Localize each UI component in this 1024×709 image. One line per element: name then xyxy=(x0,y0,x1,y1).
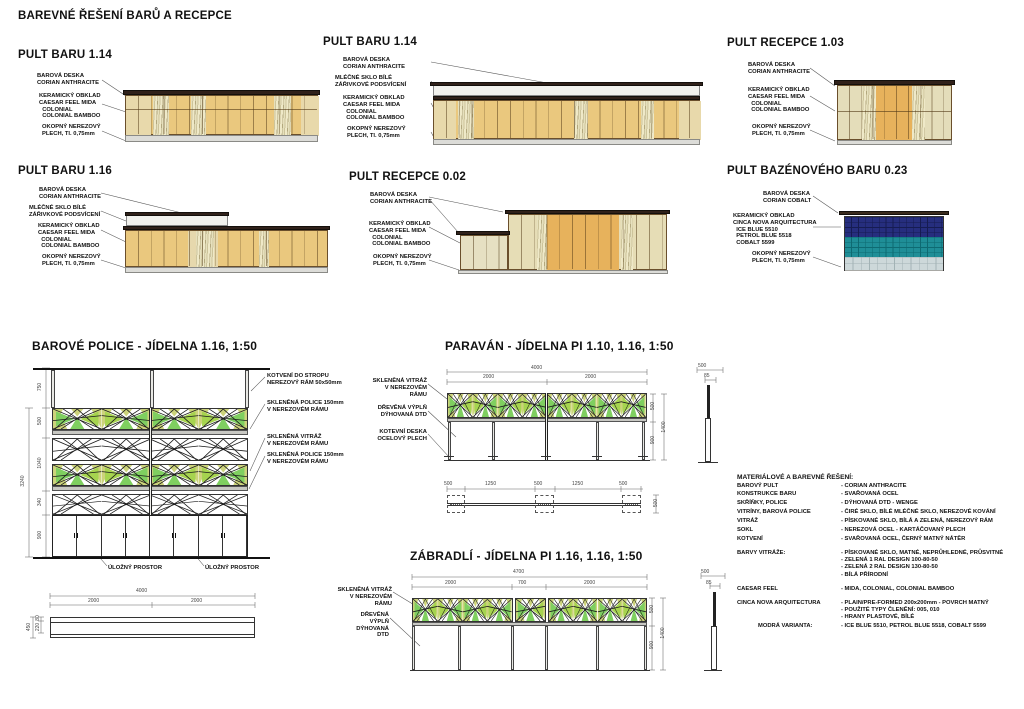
dim: 900 xyxy=(649,634,655,656)
police-label: SKLENĚNÁ POLICE 150mm V NEREZOVÉM RÁMU xyxy=(267,400,344,414)
plinth xyxy=(837,140,952,145)
elevation-3-label: BAROVÁ DESKA CORIAN ANTHRACITE xyxy=(748,62,810,76)
material-value: - NEREZOVÁ OCEL - KARTÁČOVANÝ PLECH xyxy=(841,527,1021,534)
dim: 500 xyxy=(698,363,706,369)
dim: 2000 xyxy=(191,598,202,604)
vitraz-tile xyxy=(448,394,473,417)
material-key: KONSTRUKCE BARU xyxy=(737,491,841,498)
vitraz-band xyxy=(412,598,513,622)
materials-row: CAESAR FEEL- MIDA, COLONIAL, COLONIAL BA… xyxy=(737,586,1021,593)
zabradli-label: DŘEVĚNÁ VÝPLŇ DÝHOVANÁ DTD xyxy=(343,612,389,639)
materials-row: MODRÁ VARIANTA:- ICE BLUE 5510, PETROL B… xyxy=(737,623,1021,630)
counter-elevation-pult-recepce-103 xyxy=(834,80,955,145)
vitraz-tile xyxy=(549,599,573,621)
vitraz-tile xyxy=(547,394,572,417)
dim: 1250 xyxy=(485,481,496,487)
dim: 1250 xyxy=(572,481,583,487)
support-post xyxy=(596,626,599,670)
dim: 500 xyxy=(534,481,542,487)
vitraz-tile xyxy=(413,599,438,621)
support-post xyxy=(644,626,647,670)
vitraz-tile xyxy=(522,394,547,417)
elevation-3-label: KERAMICKÝ OBKLAD CAESAR FEEL MIDA COLONI… xyxy=(748,87,810,114)
paravan-label: KOTEVNÍ DESKA OCELOVÝ PLECH xyxy=(377,429,427,443)
material-key: SKŘÍŇKY, POLICE xyxy=(737,500,841,507)
material-value: - ICE BLUE 5510, PETROL BLUE 5518, COBAL… xyxy=(841,623,1021,630)
support-post xyxy=(596,422,599,460)
plan-line xyxy=(51,622,254,623)
materials-row: KOTVENÍ- SVAŘOVANÁ OCEL, ČERNÝ MATNÝ NÁT… xyxy=(737,536,1021,543)
counter-top-slab xyxy=(839,211,949,215)
elevation-5-title: PULT RECEPCE 0.02 xyxy=(349,171,466,183)
elevation-4-label: BAROVÁ DESKA CORIAN ANTHRACITE xyxy=(39,187,101,201)
counter-elevation-pult-baru-114 xyxy=(123,90,320,142)
elevation-2-label: OKOPNÝ NEREZOVÝ PLECH, Tl. 0,75mm xyxy=(347,126,406,140)
elevation-2-label: BAROVÁ DESKA CORIAN ANTHRACITE xyxy=(343,57,405,71)
support-post xyxy=(448,422,451,460)
plinth xyxy=(125,135,318,142)
elevation-6-label: OKOPNÝ NEREZOVÝ PLECH, Tl. 0,75mm xyxy=(752,251,811,265)
dim: 500 xyxy=(650,395,656,417)
vitraz-tile xyxy=(102,495,151,514)
cabinet-door xyxy=(77,516,101,556)
milk-glass-band xyxy=(126,216,228,226)
material-value: - ČIRÉ SKLO, BÍLÉ MLÉČNÉ SKLO, NEREZOVÉ … xyxy=(841,509,1021,516)
dim: 500 xyxy=(37,410,43,432)
elevation-1-title: PULT BARU 1.14 xyxy=(18,49,112,61)
base-plate xyxy=(541,456,551,457)
vitraz-tile xyxy=(597,394,622,417)
dim: 1400 xyxy=(661,416,667,438)
plinth xyxy=(433,139,700,146)
footing-axis xyxy=(625,504,638,505)
vitraz-tile xyxy=(53,409,102,429)
pool-band-petrol xyxy=(845,237,943,257)
materials-legend: MATERIÁLOVÉ A BAREVNÉ ŘEŠENÍ: BAROVÝ PUL… xyxy=(737,474,1021,631)
cabinet-door xyxy=(223,516,247,556)
sheet-title: BAREVNÉ ŘEŠENÍ BARŮ A RECEPCE xyxy=(18,10,232,22)
elevation-4-title: PULT BARU 1.16 xyxy=(18,165,112,177)
dim: 2000 xyxy=(584,580,595,586)
dim: 900 xyxy=(37,524,43,546)
zabradli-title: ZÁBRADLÍ - JÍDELNA PI 1.16, 1.16, 1:50 xyxy=(410,549,643,563)
ceiling-anchor-post xyxy=(150,370,154,408)
vitraz-tile xyxy=(622,599,646,621)
dim: 500 xyxy=(444,481,452,487)
footing-plate xyxy=(447,495,465,513)
dim: 340 xyxy=(37,491,43,513)
elevation-3-title: PULT RECEPCE 1.03 xyxy=(727,37,844,49)
materials-row: SOKL- NEREZOVÁ OCEL - KARTÁČOVANÝ PLECH xyxy=(737,527,1021,534)
side-profile-base xyxy=(704,670,722,671)
cabinet-door xyxy=(199,516,223,556)
elevation-5-label: KERAMICKÝ OBKLAD CAESAR FEEL MIDA COLONI… xyxy=(369,221,431,248)
vitraz-band xyxy=(515,598,546,622)
materials-row: BAROVÝ PULT- CORIAN ANTHRACITE xyxy=(737,483,1021,490)
storage-label: ÚLOŽNÝ PROSTOR xyxy=(108,565,162,572)
dim: 500 xyxy=(653,492,659,514)
police-label: KOTVENÍ DO STROPU NEREZOVÝ RÁM 50x50mm xyxy=(267,373,342,387)
base-plate xyxy=(444,456,454,457)
vitraz-tile xyxy=(199,465,248,485)
footing-axis xyxy=(450,504,462,505)
vitraz-tile xyxy=(150,439,199,460)
vitraz-tile xyxy=(516,599,545,621)
vitraz-tile xyxy=(573,599,597,621)
dim: 85 xyxy=(704,373,710,379)
tile-joint-horizontal xyxy=(838,111,951,112)
drawing-sheet: BAREVNÉ ŘEŠENÍ BARŮ A RECEPCE PULT BARU … xyxy=(0,0,1024,709)
zabradli-label: SKLENĚNÁ VITRÁŽ V NEREZOVÉM RÁMU xyxy=(334,587,392,607)
door-handle xyxy=(221,533,225,538)
dim: 900 xyxy=(650,429,656,451)
tile-joints xyxy=(509,215,666,269)
tile-joints xyxy=(838,86,951,139)
footing-plate xyxy=(535,495,554,513)
vitraz-tile xyxy=(53,495,102,514)
material-key: VITRÍNY, BAROVÁ POLICE xyxy=(737,509,841,516)
tile-joint-horizontal xyxy=(126,109,317,110)
vitraz-tile xyxy=(438,599,463,621)
paravan-title: PARAVÁN - JÍDELNA PI 1.10, 1.16, 1:50 xyxy=(445,339,674,353)
elevation-4-label: MLÉČNÉ SKLO BÍLÉ ZÁŘIVKOVÉ PODSVÍCENÍ xyxy=(29,205,100,219)
counter-elevation-pult-baru-116 xyxy=(123,212,330,273)
dim: 500 xyxy=(649,598,655,620)
elevation-2-label: KERAMICKÝ OBKLAD CAESAR FEEL MIDA COLONI… xyxy=(343,95,405,122)
door-handle xyxy=(74,533,78,538)
ceramic-tiles xyxy=(433,100,700,139)
side-profile-base xyxy=(698,462,718,463)
support-post xyxy=(458,626,461,670)
ceramic-tiles xyxy=(508,214,667,270)
cabinet-door xyxy=(174,516,198,556)
storage-label: ÚLOŽNÝ PROSTOR xyxy=(205,565,259,572)
dim: 4000 xyxy=(136,588,147,594)
vitraz-tile xyxy=(53,465,102,485)
side-profile-glass xyxy=(713,592,716,626)
footing-axis xyxy=(538,504,551,505)
support-post xyxy=(642,422,645,460)
pool-base-strip xyxy=(845,270,943,272)
materials-title: MATERIÁLOVÉ A BAREVNÉ ŘEŠENÍ: xyxy=(737,474,1021,481)
police-title: BAROVÉ POLICE - JÍDELNA 1.16, 1:50 xyxy=(32,339,257,353)
vitraz-tile xyxy=(572,394,597,417)
vitraz-tile xyxy=(463,599,488,621)
material-key: MODRÁ VARIANTA: xyxy=(737,623,841,630)
frame-divider xyxy=(545,393,548,460)
dim: 450 xyxy=(26,620,32,634)
vitraz-tile xyxy=(102,465,151,485)
police-plan-outline xyxy=(50,617,255,638)
vitraz-tile xyxy=(498,394,523,417)
material-key: BAROVÝ PULT xyxy=(737,483,841,490)
police-label: SKLENĚNÁ VITRÁŽ V NEREZOVÉM RÁMU xyxy=(267,434,328,448)
dim: 750 xyxy=(37,376,43,398)
material-value: - PÍSKOVANÉ SKLO, MATNÉ, NEPRŮHLEDNÉ, PR… xyxy=(841,550,1021,579)
material-key: CINCA NOVA ARQUITECTURA xyxy=(737,600,841,622)
materials-row: KONSTRUKCE BARU- SVAŘOVANÁ OCEL xyxy=(737,491,1021,498)
side-profile-post xyxy=(705,418,711,462)
dim: 500 xyxy=(619,481,627,487)
base-plate xyxy=(592,456,602,457)
paravan-label: DŘEVĚNÁ VÝPLŇ DÝHOVANÁ DTD xyxy=(377,405,427,419)
elevation-4-label: OKOPNÝ NEREZOVÝ PLECH, Tl. 0,75mm xyxy=(42,254,101,268)
elevation-1-label: BAROVÁ DESKA CORIAN ANTHRACITE xyxy=(37,73,99,87)
material-value: - PLAIN/PRE-FORMED 200x200mm - POVRCH MA… xyxy=(841,600,1021,622)
police-label: SKLENĚNÁ POLICE 150mm V NEREZOVÉM RÁMU xyxy=(267,452,344,466)
material-value: - CORIAN ANTHRACITE xyxy=(841,483,1021,490)
plinth xyxy=(125,267,328,274)
vitraz-tile xyxy=(53,439,102,460)
materials-row: BARVY VITRÁŽE:- PÍSKOVANÉ SKLO, MATNÉ, N… xyxy=(737,550,1021,579)
vitraz-tile xyxy=(102,409,151,429)
ceiling-anchor-post xyxy=(51,370,55,408)
elevation-3-label: OKOPNÝ NEREZOVÝ PLECH, Tl. 0,75mm xyxy=(752,124,811,138)
material-key: SOKL xyxy=(737,527,841,534)
dim: 1040 xyxy=(37,452,43,474)
plan-line xyxy=(51,634,254,635)
floor-line xyxy=(410,670,650,671)
base-plate xyxy=(638,456,648,457)
material-key: BARVY VITRÁŽE: xyxy=(737,550,841,579)
dim: 2000 xyxy=(483,374,494,380)
support-post xyxy=(511,626,514,670)
ceramic-tiles xyxy=(460,235,508,271)
pool-tile-wall xyxy=(844,216,944,271)
elevation-1-label: KERAMICKÝ OBKLAD CAESAR FEEL MIDA COLONI… xyxy=(39,93,101,120)
side-profile-glass xyxy=(707,385,710,418)
dim: 700 xyxy=(518,580,526,586)
material-value: - SVAŘOVANÁ OCEL xyxy=(841,491,1021,498)
floor-line xyxy=(33,557,270,559)
vitraz-tile xyxy=(199,439,248,460)
vitraz-tile xyxy=(150,465,199,485)
tile-joints xyxy=(126,231,327,266)
frame-divider xyxy=(149,408,152,515)
tile-joints xyxy=(461,236,507,270)
elevation-5-label: OKOPNÝ NEREZOVÝ PLECH, Tl. 0,75mm xyxy=(373,254,432,268)
materials-row: VITRÍNY, BAROVÁ POLICE- ČIRÉ SKLO, BÍLÉ … xyxy=(737,509,1021,516)
dim: 1400 xyxy=(660,622,666,644)
material-key: CAESAR FEEL xyxy=(737,586,841,593)
counter-elevation-pult-recepce-002 xyxy=(456,210,670,274)
materials-row: SKŘÍŇKY, POLICE- DÝHOVANÁ DTD - WENGE xyxy=(737,500,1021,507)
tile-joints xyxy=(126,96,317,134)
vitraz-tile xyxy=(150,495,199,514)
elevation-4-label: KERAMICKÝ OBKLAD CAESAR FEEL MIDA COLONI… xyxy=(38,223,100,250)
dim: 2000 xyxy=(585,374,596,380)
counter-elevation-pult-baru-114b xyxy=(430,82,703,145)
elevation-2-label: MLÉČNÉ SKLO BÍLÉ ZÁŘIVKOVÉ PODSVÍCENÍ xyxy=(335,75,406,89)
ceramic-tiles xyxy=(125,95,318,135)
elevation-2-title: PULT BARU 1.14 xyxy=(323,36,417,48)
base-plate xyxy=(488,456,498,457)
floor-line xyxy=(444,460,650,461)
material-key: KOTVENÍ xyxy=(737,536,841,543)
elevation-5-label: BAROVÁ DESKA CORIAN ANTHRACITE xyxy=(370,192,432,206)
elevation-6-title: PULT BAZÉNOVÉHO BARU 0.23 xyxy=(727,165,908,177)
side-profile-post xyxy=(711,626,717,670)
vitraz-tile xyxy=(199,495,248,514)
elevation-6-label: BAROVÁ DESKA CORIAN COBALT xyxy=(763,191,811,205)
dim: 3240 xyxy=(20,470,26,492)
door-handle xyxy=(123,533,127,538)
vitraz-tile xyxy=(473,394,498,417)
dim: 4000 xyxy=(531,365,542,371)
vitraz-tile xyxy=(487,599,512,621)
material-value: - SVAŘOVANÁ OCEL, ČERNÝ MATNÝ NÁTĚR xyxy=(841,536,1021,543)
materials-row: CINCA NOVA ARQUITECTURA- PLAIN/PRE-FORME… xyxy=(737,600,1021,622)
vitraz-tile xyxy=(621,394,646,417)
cabinet-door xyxy=(150,516,174,556)
ceramic-tiles xyxy=(125,230,328,267)
cabinet-door xyxy=(126,516,150,556)
ceramic-tiles xyxy=(837,85,952,140)
pool-band-ice xyxy=(845,257,943,270)
door-handle xyxy=(172,533,176,538)
material-value: - PÍSKOVANÉ SKLO, BÍLÁ A ZELENÁ, NEREZOV… xyxy=(841,518,1021,525)
paravan-label: SKLENĚNÁ VITRÁŽ V NEREZOVÉM RÁMU xyxy=(366,378,427,398)
rail-cap xyxy=(412,622,647,626)
support-post xyxy=(492,422,495,460)
dim: 4700 xyxy=(513,569,524,575)
footing-plate xyxy=(622,495,641,513)
dim: 500 xyxy=(701,569,709,575)
tile-joints xyxy=(434,101,699,138)
materials-row: VITRÁŽ- PÍSKOVANÉ SKLO, BÍLÁ A ZELENÁ, N… xyxy=(737,518,1021,525)
elevation-6-label: KERAMICKÝ OBKLAD CINCA NOVA ARQUITECTURA… xyxy=(733,213,817,247)
support-post xyxy=(545,626,548,670)
material-value: - DÝHOVANÁ DTD - WENGE xyxy=(841,500,1021,507)
storage-cabinet xyxy=(52,515,248,557)
counter-elevation-pool-bar xyxy=(839,211,949,272)
pool-band-cobalt xyxy=(845,217,943,237)
dim: 85 xyxy=(706,580,712,586)
vitraz-tile xyxy=(199,409,248,429)
vitraz-band xyxy=(548,598,647,622)
milk-glass-band xyxy=(433,86,700,96)
material-key: VITRÁŽ xyxy=(737,518,841,525)
material-value: - MIDA, COLONIAL, COLONIAL BAMBOO xyxy=(841,586,1021,593)
dim: 2000 xyxy=(88,598,99,604)
dim: 2000 xyxy=(445,580,456,586)
ceiling-anchor-post xyxy=(245,370,249,408)
vitraz-tile xyxy=(598,599,622,621)
support-post xyxy=(412,626,415,670)
plinth xyxy=(458,270,668,274)
dim: 220 xyxy=(35,620,41,634)
vitraz-tile xyxy=(150,409,199,429)
vitraz-tile xyxy=(102,439,151,460)
elevation-1-label: OKOPNÝ NEREZOVÝ PLECH, Tl. 0,75mm xyxy=(42,124,101,138)
